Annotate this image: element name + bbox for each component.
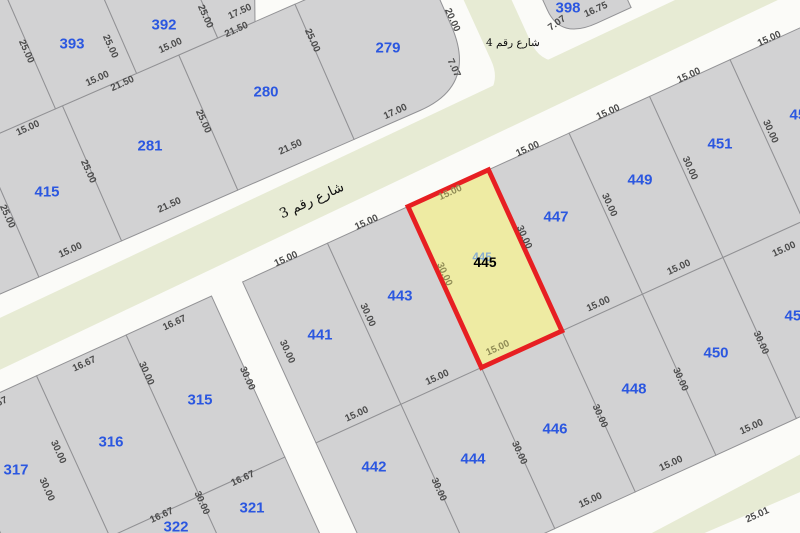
svg-text:280: 280 — [253, 83, 278, 100]
svg-text:443: 443 — [387, 287, 412, 304]
svg-text:441: 441 — [307, 326, 332, 343]
svg-text:453: 453 — [789, 106, 800, 123]
svg-text:442: 442 — [361, 458, 386, 475]
svg-text:446: 446 — [542, 420, 567, 437]
svg-text:281: 281 — [137, 137, 162, 154]
svg-text:447: 447 — [543, 208, 568, 225]
svg-text:392: 392 — [151, 16, 176, 33]
svg-text:445: 445 — [473, 255, 496, 270]
svg-text:393: 393 — [59, 35, 84, 52]
svg-text:448: 448 — [621, 380, 646, 397]
svg-text:451: 451 — [707, 135, 732, 152]
svg-text:317: 317 — [3, 461, 28, 478]
svg-text:449: 449 — [627, 171, 652, 188]
svg-text:450: 450 — [703, 344, 728, 361]
svg-text:321: 321 — [239, 499, 264, 516]
svg-text:315: 315 — [187, 391, 212, 408]
svg-text:415: 415 — [34, 183, 59, 200]
svg-text:316: 316 — [98, 433, 123, 450]
svg-text:279: 279 — [375, 39, 400, 56]
svg-text:444: 444 — [460, 450, 486, 467]
svg-text:452: 452 — [784, 307, 800, 324]
svg-text:322: 322 — [163, 518, 188, 533]
